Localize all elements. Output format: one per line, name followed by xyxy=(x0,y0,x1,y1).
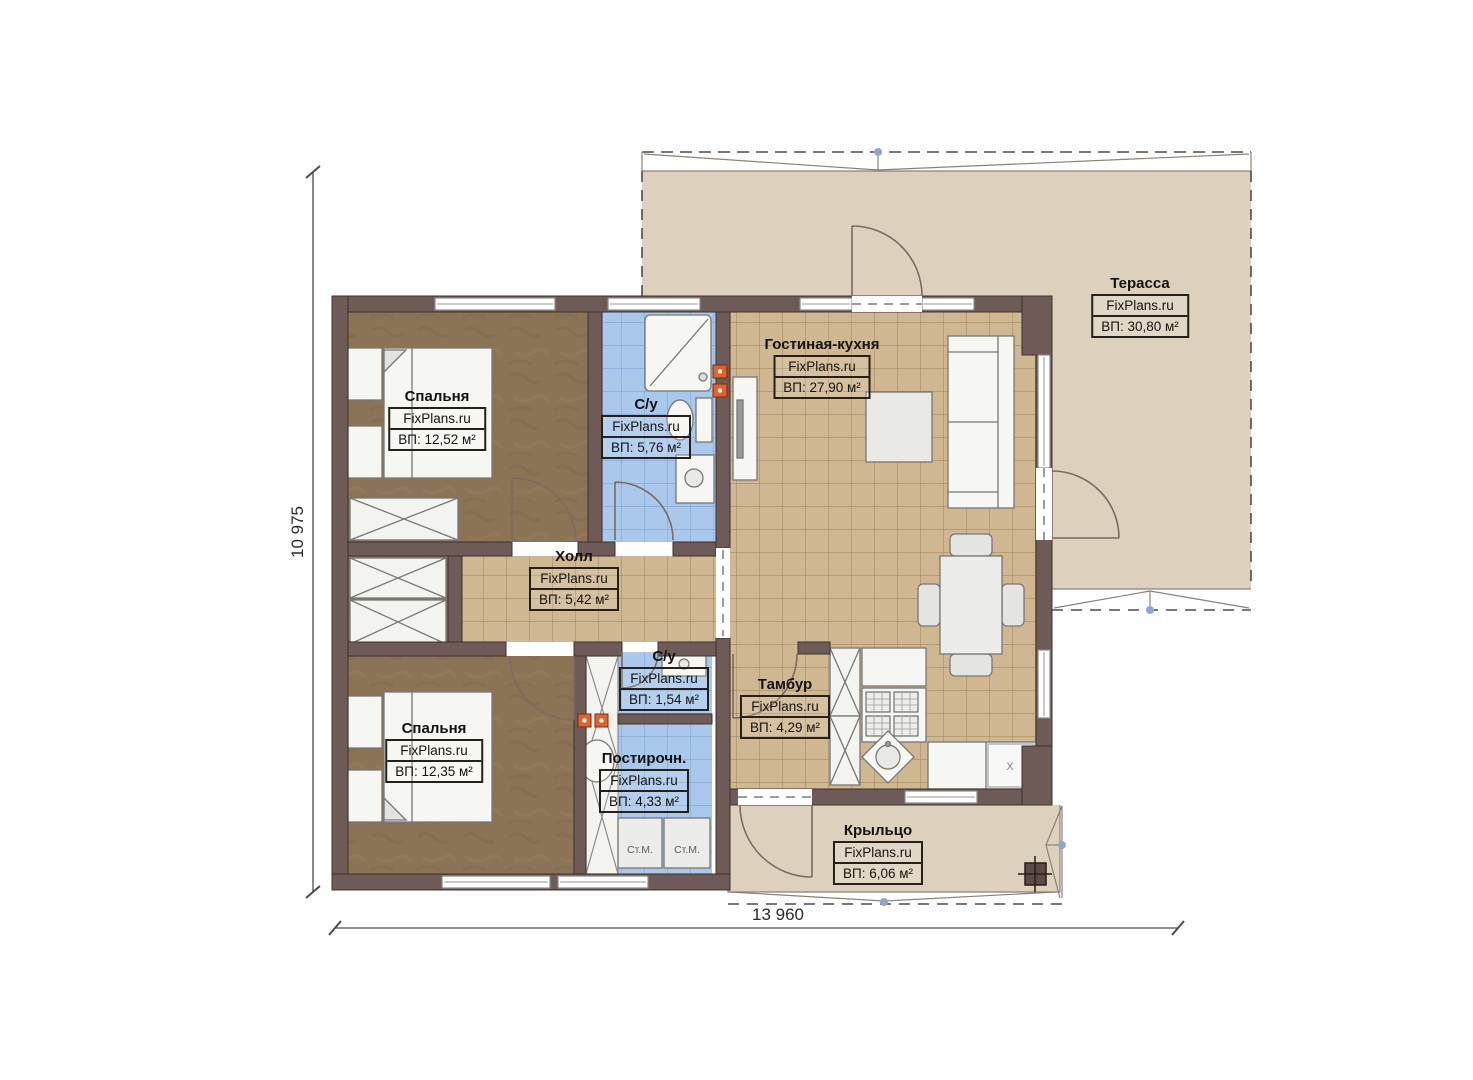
room-info-box: FixPlans.ru ВП: 27,90 м² xyxy=(773,355,871,399)
roof-node xyxy=(1146,606,1154,614)
washbasin-icon xyxy=(676,455,714,503)
room-name: Постирочн. xyxy=(599,751,689,767)
watermark: FixPlans.ru xyxy=(775,357,869,376)
room-info-box: FixPlans.ru ВП: 1,54 м² xyxy=(619,667,709,711)
room-info-box: FixPlans.ru ВП: 30,80 м² xyxy=(1091,294,1189,338)
stove-icon xyxy=(862,688,926,742)
roof-node xyxy=(1058,841,1066,849)
room-label-terrace: Терасса FixPlans.ru ВП: 30,80 м² xyxy=(1091,276,1189,338)
wall-pillar xyxy=(1022,746,1052,805)
washer-label-left: Ст.М. xyxy=(627,844,653,856)
shower-icon xyxy=(645,315,711,391)
room-info-box: FixPlans.ru ВП: 6,06 м² xyxy=(833,841,923,885)
room-label-porch: Крыльцо FixPlans.ru ВП: 6,06 м² xyxy=(833,823,923,885)
room-area: ВП: 4,33 м² xyxy=(601,790,687,811)
room-area: ВП: 1,54 м² xyxy=(621,688,707,709)
room-name: Гостиная-кухня xyxy=(765,337,880,353)
room-name: С/у xyxy=(619,649,709,665)
room-area: ВП: 6,06 м² xyxy=(835,862,921,883)
watermark: FixPlans.ru xyxy=(390,409,484,428)
room-name: Спальня xyxy=(388,389,486,405)
room-label-hall: Холл FixPlans.ru ВП: 5,42 м² xyxy=(529,549,619,611)
room-label-bathroom-small: С/у FixPlans.ru ВП: 1,54 м² xyxy=(619,649,709,711)
wall-left xyxy=(332,296,348,890)
fridge xyxy=(862,648,926,686)
room-name: Крыльцо xyxy=(833,823,923,839)
tv-unit xyxy=(733,377,757,480)
sofa xyxy=(948,336,1014,508)
kitchen-shaft xyxy=(830,648,860,785)
door-opening xyxy=(716,548,730,638)
room-name: Терасса xyxy=(1091,276,1189,292)
room-info-box: FixPlans.ru ВП: 4,29 м² xyxy=(740,695,830,739)
room-label-living-kitchen: Гостиная-кухня FixPlans.ru ВП: 27,90 м² xyxy=(765,337,880,399)
washer-label-right: Ст.М. xyxy=(674,844,700,856)
watermark: FixPlans.ru xyxy=(603,417,689,436)
watermark: FixPlans.ru xyxy=(742,697,828,716)
room-label-tambour: Тамбур FixPlans.ru ВП: 4,29 м² xyxy=(740,677,830,739)
room-label-bathroom-top: С/у FixPlans.ru ВП: 5,76 м² xyxy=(601,397,691,459)
watermark: FixPlans.ru xyxy=(835,843,921,862)
room-name: Спальня xyxy=(385,721,483,737)
room-area: ВП: 30,80 м² xyxy=(1093,315,1187,336)
room-area: ВП: 4,29 м² xyxy=(742,716,828,737)
kitchen-counter xyxy=(928,742,1036,789)
room-area: ВП: 12,35 м² xyxy=(387,760,481,781)
floorplan-canvas: Спальня FixPlans.ru ВП: 12,52 м² С/у Fix… xyxy=(0,0,1473,1080)
coffee-table xyxy=(866,392,932,462)
watermark: FixPlans.ru xyxy=(601,771,687,790)
wardrobe xyxy=(350,498,458,644)
watermark: FixPlans.ru xyxy=(531,569,617,588)
room-area: ВП: 5,42 м² xyxy=(531,588,617,609)
room-info-box: FixPlans.ru ВП: 12,52 м² xyxy=(388,407,486,451)
watermark: FixPlans.ru xyxy=(621,669,707,688)
roof-node xyxy=(874,148,882,156)
storage-mark: x xyxy=(1007,757,1014,773)
dimension-label-bottom: 13 960 xyxy=(752,905,804,925)
wall-pillar xyxy=(1022,296,1052,355)
room-info-box: FixPlans.ru ВП: 5,76 м² xyxy=(601,415,691,459)
room-name: Холл xyxy=(529,549,619,565)
dimension-label-left: 10 975 xyxy=(288,506,308,558)
room-name: Тамбур xyxy=(740,677,830,693)
washing-machine xyxy=(618,818,710,868)
roof-node xyxy=(880,898,888,906)
watermark: FixPlans.ru xyxy=(1093,296,1187,315)
room-area: ВП: 12,52 м² xyxy=(390,428,484,449)
dining-table xyxy=(940,556,1002,654)
room-area: ВП: 27,90 м² xyxy=(775,376,869,397)
watermark: FixPlans.ru xyxy=(387,741,481,760)
floorplan-drawing xyxy=(0,0,1473,1080)
room-info-box: FixPlans.ru ВП: 4,33 м² xyxy=(599,769,689,813)
room-label-laundry: Постирочн. FixPlans.ru ВП: 4,33 м² xyxy=(599,751,689,813)
room-info-box: FixPlans.ru ВП: 5,42 м² xyxy=(529,567,619,611)
room-area: ВП: 5,76 м² xyxy=(603,436,689,457)
room-name: С/у xyxy=(601,397,691,413)
room-label-bedroom-top: Спальня FixPlans.ru ВП: 12,52 м² xyxy=(388,389,486,451)
room-label-bedroom-bottom: Спальня FixPlans.ru ВП: 12,35 м² xyxy=(385,721,483,783)
room-info-box: FixPlans.ru ВП: 12,35 м² xyxy=(385,739,483,783)
